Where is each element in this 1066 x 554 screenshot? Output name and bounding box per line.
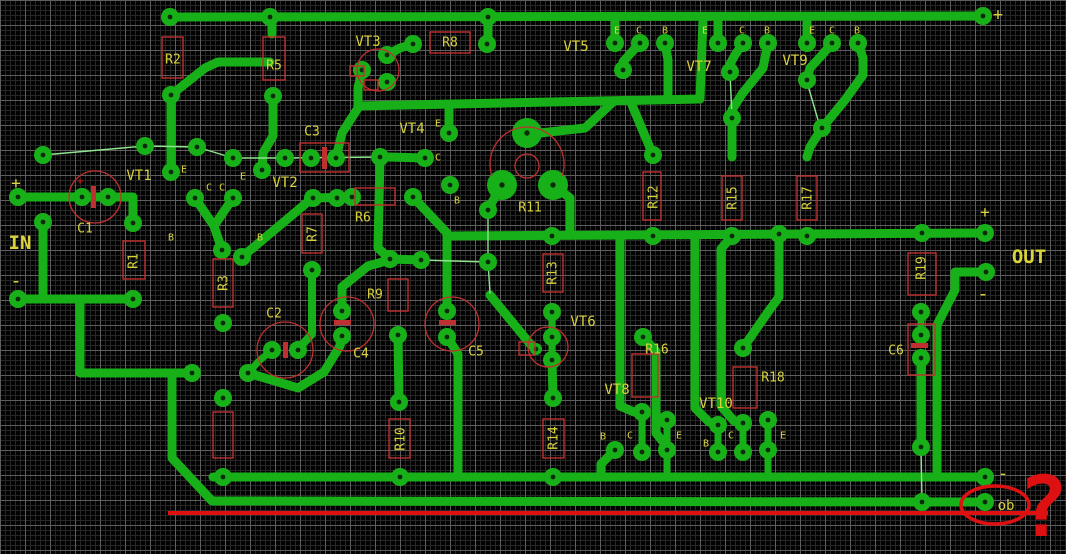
component-label: C <box>219 183 225 194</box>
pad-hole <box>919 310 924 315</box>
component-label: OUT <box>1012 246 1046 268</box>
pad-hole <box>385 53 390 58</box>
component-label: B <box>257 233 263 244</box>
component-label: + <box>993 5 1003 25</box>
pad-hole <box>16 297 21 302</box>
component-label: VT8 <box>604 382 629 398</box>
pad-hole <box>919 333 924 338</box>
pad-hole <box>663 41 668 46</box>
pad-hole <box>486 15 491 20</box>
component-label: C <box>627 431 633 442</box>
component-label: C <box>206 183 212 194</box>
pad-hole <box>340 309 345 314</box>
pad-hole <box>716 423 721 428</box>
pad-hole <box>613 41 618 46</box>
pad-hole <box>486 208 491 213</box>
pad-hole <box>766 448 771 453</box>
capacitor-polarity-bar <box>322 147 327 169</box>
component-label: R18 <box>761 371 784 386</box>
pad-hole <box>820 126 825 131</box>
pad-hole <box>486 260 491 265</box>
pad-hole <box>445 309 450 314</box>
pad-hole <box>41 220 46 225</box>
component-label: E <box>614 26 620 37</box>
component-label: VT9 <box>782 53 807 69</box>
component-label: IN <box>9 232 32 254</box>
component-label: E <box>240 172 246 183</box>
pad-hole <box>411 195 416 200</box>
component-label: + <box>77 175 84 188</box>
component-label: C4 <box>353 347 369 362</box>
pad-hole <box>220 248 225 253</box>
component-label: R8 <box>442 36 458 51</box>
pad-hole <box>550 182 555 187</box>
pad-hole <box>730 234 735 239</box>
pad-hole <box>168 15 173 20</box>
pad-hole <box>270 348 275 353</box>
component-label: B <box>703 439 709 450</box>
pad-hole <box>397 400 402 405</box>
pad-hole <box>195 145 200 150</box>
component-label: R13 <box>546 261 561 284</box>
component-label: R9 <box>367 288 383 303</box>
component-label: VT5 <box>563 39 588 55</box>
pad-hole <box>665 448 670 453</box>
component-label: R7 <box>306 226 321 242</box>
pad-hole <box>920 500 925 505</box>
pad-hole <box>310 268 315 273</box>
component-label: VT10 <box>699 396 733 412</box>
component-label: - <box>998 464 1008 484</box>
pad-hole <box>445 335 450 340</box>
pad-hole <box>80 195 85 200</box>
pad-hole <box>741 421 746 426</box>
pad-hole <box>309 156 314 161</box>
component-label: C6 <box>888 344 904 359</box>
pad-hole <box>550 358 555 363</box>
component-label: R2 <box>165 53 181 68</box>
pad-hole <box>231 196 236 201</box>
component-label: E <box>181 165 187 176</box>
pad-hole <box>448 183 453 188</box>
pad-hole <box>193 196 198 201</box>
component-label: R11 <box>518 201 541 216</box>
pad-hole <box>640 410 645 415</box>
pad-hole <box>340 334 345 339</box>
pad-hole <box>638 41 643 46</box>
pad-hole <box>169 170 174 175</box>
pad-hole <box>334 156 339 161</box>
pad-hole <box>499 182 504 187</box>
component-label: B <box>454 196 460 207</box>
pad-hole <box>777 232 782 237</box>
pad-hole <box>919 445 924 450</box>
pad-hole <box>268 15 273 20</box>
pad-hole <box>143 144 148 149</box>
pad-hole <box>411 42 416 47</box>
pad-hole <box>335 196 340 201</box>
component-label: C5 <box>468 345 484 360</box>
pad-hole <box>296 348 301 353</box>
capacitor-polarity-bar <box>439 320 456 325</box>
component-label: C <box>829 26 835 37</box>
component-label: B <box>168 233 174 244</box>
pad-hole <box>385 80 390 85</box>
component-label: C3 <box>304 125 320 140</box>
component-label: E <box>809 26 815 37</box>
pad-hole <box>830 41 835 46</box>
pad-hole <box>190 371 195 376</box>
component-label: VT1 <box>126 168 151 184</box>
component-label: VT7 <box>686 59 711 75</box>
component-label: E <box>780 431 786 442</box>
pad-hole <box>983 475 988 480</box>
pad-hole <box>283 156 288 161</box>
copper-trace <box>170 16 983 17</box>
pad-hole <box>766 41 771 46</box>
component-label: R6 <box>355 211 371 226</box>
pad-hole <box>551 396 556 401</box>
pad-hole <box>984 270 989 275</box>
pad-hole <box>550 310 555 315</box>
pad-hole <box>311 196 316 201</box>
pad-hole <box>651 153 656 158</box>
component-label: R10 <box>394 427 409 450</box>
component-label: E <box>676 431 682 442</box>
pad-hole <box>271 94 276 99</box>
pad-hole <box>221 321 226 326</box>
pad-hole <box>981 14 986 19</box>
component-label: - <box>977 283 988 305</box>
pad-hole <box>730 116 735 121</box>
component-label: R17 <box>801 186 816 209</box>
pcb-layout-image: R2R5VT3R8VT5ECBVT7ECBVT9ECB+VT1ECCEBBVT2… <box>0 0 1066 554</box>
component-label: + <box>980 203 990 222</box>
pad-hole <box>651 234 656 239</box>
pad-hole <box>246 371 251 376</box>
pad-hole <box>423 156 428 161</box>
pad-hole <box>741 450 746 455</box>
pad-hole <box>741 346 746 351</box>
pad-hole <box>665 418 670 423</box>
pad-hole <box>169 93 174 98</box>
copper-trace <box>398 335 399 402</box>
grid <box>0 0 1066 554</box>
pad-hole <box>551 475 556 480</box>
pad-hole <box>766 418 771 423</box>
capacitor-polarity-bar <box>334 320 351 325</box>
pad-hole <box>550 335 555 340</box>
component-label: R16 <box>645 343 668 358</box>
component-label: C <box>728 431 734 442</box>
pad-hole <box>621 68 626 73</box>
pad-hole <box>131 297 136 302</box>
pad-hole <box>805 41 810 46</box>
pad-hole <box>524 130 529 135</box>
pad-hole <box>388 257 393 262</box>
component-label: B <box>854 26 860 37</box>
component-label: E <box>435 119 441 130</box>
pad-hole <box>728 70 733 75</box>
pad-hole <box>41 153 46 158</box>
component-label: VT4 <box>399 121 424 137</box>
component-label: R1 <box>127 253 142 269</box>
pad-hole <box>919 356 924 361</box>
component-label: R19 <box>915 256 930 279</box>
component-label: C1 <box>77 222 93 237</box>
component-label: E <box>702 26 708 37</box>
pad-hole <box>716 450 721 455</box>
pad-hole <box>231 156 236 161</box>
pad-hole <box>983 500 988 505</box>
capacitor-polarity-bar <box>91 186 96 208</box>
pad-hole <box>260 168 265 173</box>
pad-hole <box>805 234 810 239</box>
component-label: R5 <box>266 59 282 74</box>
pad-hole <box>716 41 721 46</box>
pad-hole <box>378 155 383 160</box>
copper-trace <box>447 233 985 236</box>
pad-hole <box>447 131 452 136</box>
pad-hole <box>920 231 925 236</box>
component-label: R14 <box>547 426 562 450</box>
component-label: R12 <box>647 185 662 208</box>
capacitor-polarity-bar <box>911 343 928 348</box>
pad-hole <box>641 335 646 340</box>
pad-hole <box>221 475 226 480</box>
thin-trace <box>921 449 922 500</box>
component-label: C <box>435 153 441 164</box>
component-label: R3 <box>217 275 232 291</box>
pad-hole <box>550 234 555 239</box>
component-label: VT6 <box>570 314 595 330</box>
pad-hole <box>240 255 245 260</box>
component-label: B <box>764 26 770 37</box>
pad-hole <box>398 475 403 480</box>
component-label: VT2 <box>272 175 297 191</box>
pad-hole <box>983 231 988 236</box>
component-label: + <box>11 174 21 193</box>
component-label: C <box>739 26 745 37</box>
pad-hole <box>221 396 226 401</box>
component-label: C2 <box>266 307 282 322</box>
pad-hole <box>419 258 424 263</box>
pad-hole <box>640 450 645 455</box>
pad-hole <box>131 221 136 226</box>
component-label: - <box>10 270 21 292</box>
annotation-question-mark: ? <box>1018 458 1066 554</box>
component-label: VT3 <box>355 34 380 50</box>
pad-hole <box>485 42 490 47</box>
component-label: B <box>600 432 606 443</box>
capacitor-polarity-bar <box>283 342 288 358</box>
pad-hole <box>16 195 21 200</box>
pad-hole <box>741 41 746 46</box>
pad-hole <box>856 41 861 46</box>
pad-hole <box>396 333 401 338</box>
pad-hole <box>805 78 810 83</box>
component-label: B <box>662 26 668 37</box>
pad-hole <box>350 195 355 200</box>
component-label: R15 <box>726 186 741 209</box>
pad-hole <box>106 195 111 200</box>
pad-hole <box>613 448 618 453</box>
pcb-board-svg: R2R5VT3R8VT5ECBVT7ECBVT9ECB+VT1ECCEBBVT2… <box>0 0 1066 554</box>
component-label: C <box>636 26 642 37</box>
